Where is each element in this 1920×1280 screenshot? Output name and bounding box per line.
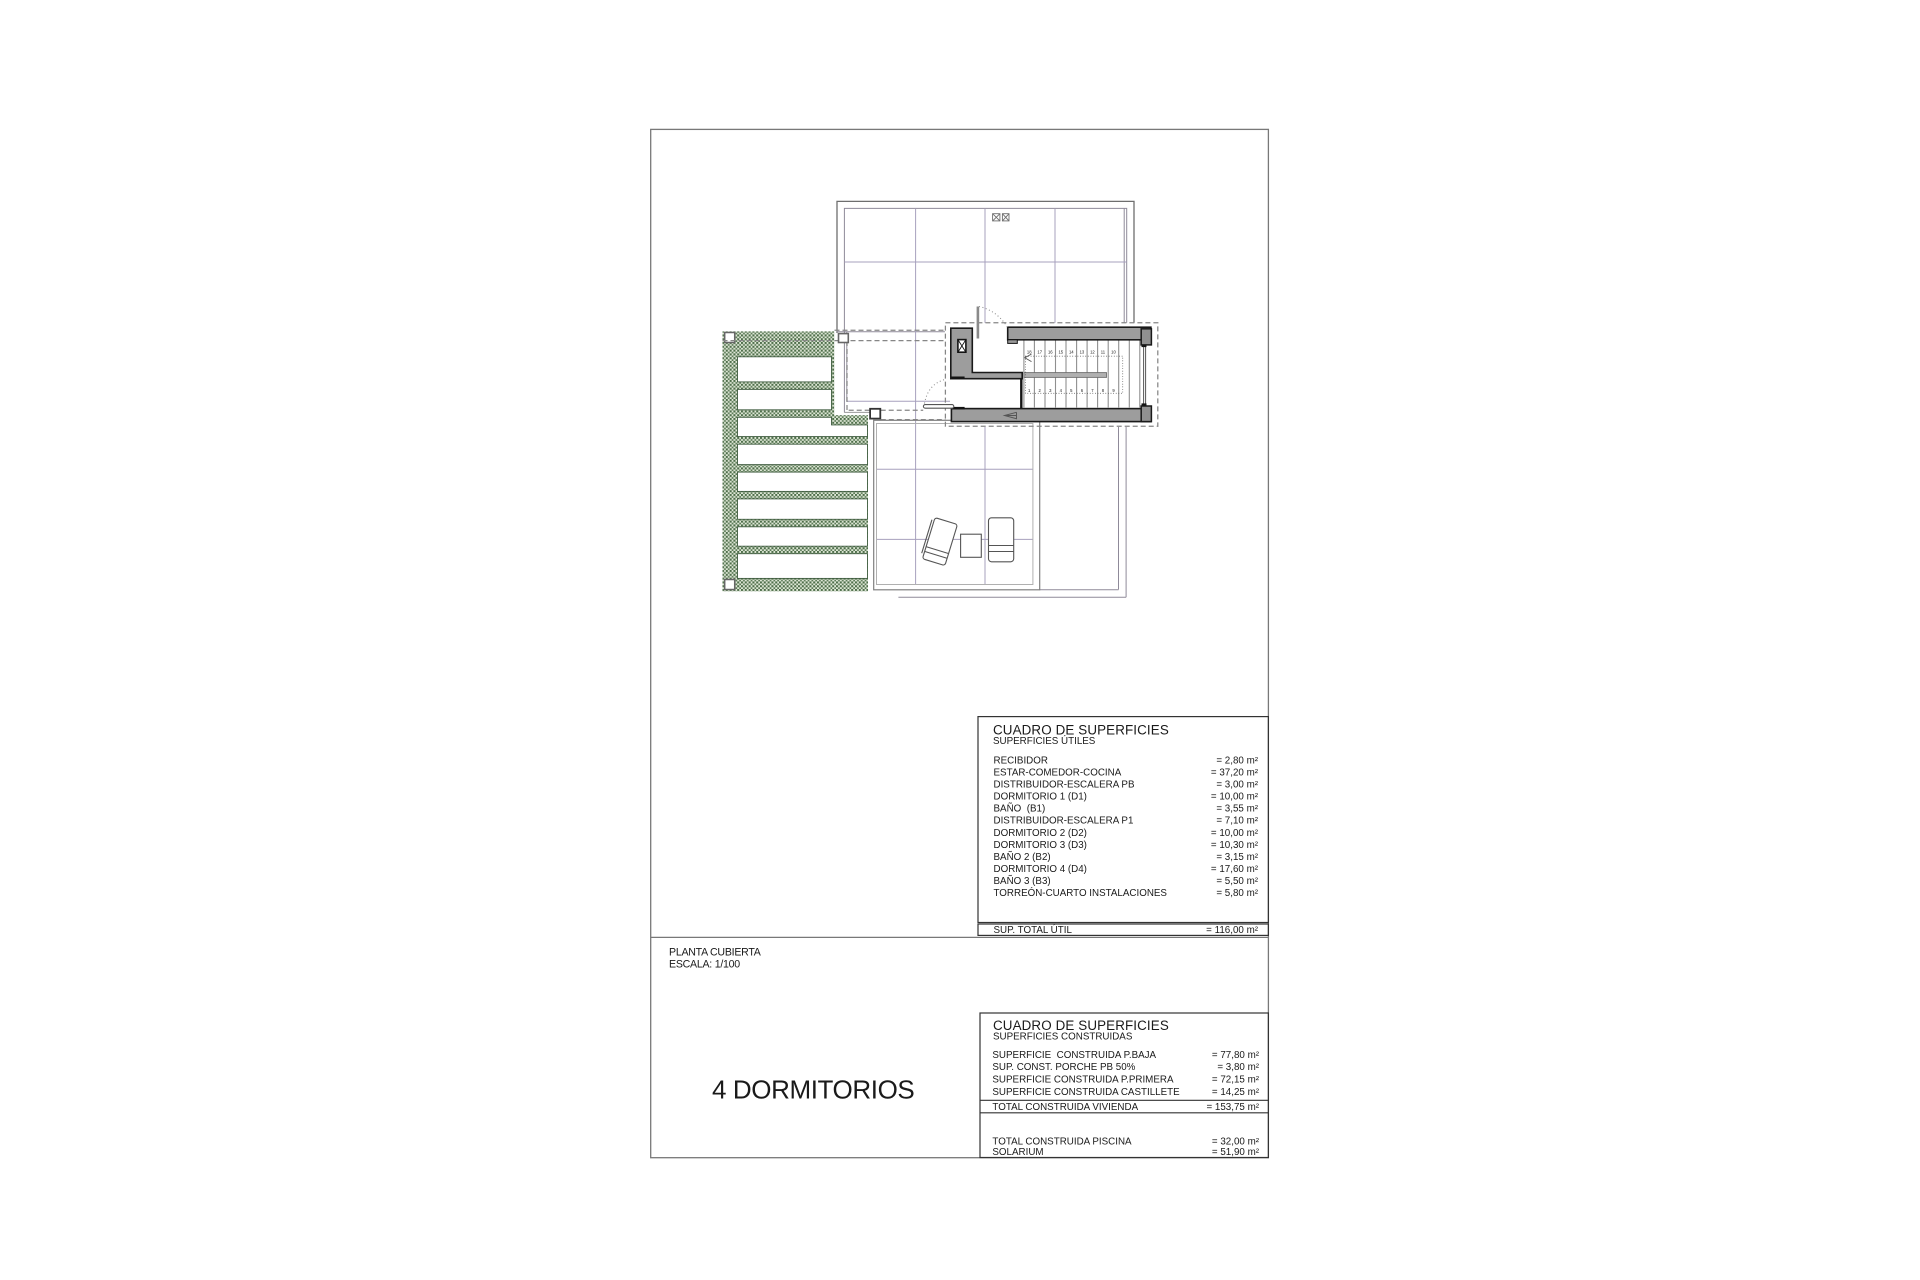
svg-text:= 5,80 m²: = 5,80 m² — [1216, 888, 1258, 899]
svg-text:SUP. CONST. PORCHE PB 50%: SUP. CONST. PORCHE PB 50% — [992, 1062, 1135, 1073]
svg-text:13: 13 — [1080, 350, 1085, 355]
svg-text:= 77,80 m²: = 77,80 m² — [1212, 1050, 1260, 1061]
svg-text:TOTAL CONSTRUIDA PISCINA: TOTAL CONSTRUIDA PISCINA — [992, 1136, 1132, 1147]
svg-text:= 10,30 m²: = 10,30 m² — [1211, 840, 1259, 851]
svg-text:= 51,90 m²: = 51,90 m² — [1212, 1147, 1260, 1158]
svg-text:ESCALA: 1/100: ESCALA: 1/100 — [669, 959, 740, 971]
svg-text:DORMITORIO 3 (D3): DORMITORIO 3 (D3) — [994, 840, 1087, 851]
svg-text:= 72,15 m²: = 72,15 m² — [1212, 1074, 1260, 1085]
svg-text:= 14,25 m²: = 14,25 m² — [1212, 1087, 1260, 1098]
svg-text:= 3,55 m²: = 3,55 m² — [1216, 804, 1258, 815]
svg-text:DISTRIBUIDOR-ESCALERA PB: DISTRIBUIDOR-ESCALERA PB — [994, 780, 1135, 791]
svg-text:SUPERFICIE CONSTRUIDA P.BAJA: SUPERFICIE CONSTRUIDA P.BAJA — [992, 1050, 1156, 1061]
svg-text:= 3,80 m²: = 3,80 m² — [1217, 1062, 1259, 1073]
svg-text:ESTAR-COMEDOR-COCINA: ESTAR-COMEDOR-COCINA — [994, 768, 1122, 779]
svg-text:SUPERFICIES ÚTILES: SUPERFICIES ÚTILES — [993, 736, 1096, 747]
svg-text:= 3,00 m²: = 3,00 m² — [1216, 780, 1258, 791]
svg-text:= 10,00 m²: = 10,00 m² — [1211, 828, 1259, 839]
svg-text:SUPERFICIE CONSTRUIDA CASTILLE: SUPERFICIE CONSTRUIDA CASTILLETE — [992, 1087, 1180, 1098]
svg-text:= 5,50 m²: = 5,50 m² — [1216, 876, 1258, 887]
svg-text:= 32,00 m²: = 32,00 m² — [1212, 1136, 1260, 1147]
svg-text:18: 18 — [1027, 350, 1032, 355]
svg-text:TORREÓN-CUARTO INSTALACIONES: TORREÓN-CUARTO INSTALACIONES — [994, 888, 1168, 899]
svg-text:4 DORMITORIOS: 4 DORMITORIOS — [712, 1074, 914, 1104]
svg-text:DORMITORIO 1 (D1): DORMITORIO 1 (D1) — [994, 792, 1087, 803]
svg-text:12: 12 — [1090, 350, 1095, 355]
svg-text:DORMITORIO 4 (D4): DORMITORIO 4 (D4) — [994, 864, 1087, 875]
svg-text:17: 17 — [1037, 350, 1042, 355]
svg-text:SUPERFICIES CONSTRUIDAS: SUPERFICIES CONSTRUIDAS — [993, 1032, 1133, 1043]
svg-text:= 7,10 m²: = 7,10 m² — [1216, 816, 1258, 827]
svg-text:SUPERFICIE CONSTRUIDA P.PRIMER: SUPERFICIE CONSTRUIDA P.PRIMERA — [992, 1074, 1174, 1085]
svg-text:= 3,15 m²: = 3,15 m² — [1216, 852, 1258, 863]
svg-text:DISTRIBUIDOR-ESCALERA P1: DISTRIBUIDOR-ESCALERA P1 — [994, 816, 1134, 827]
svg-text:BAÑO 3 (B3): BAÑO 3 (B3) — [994, 876, 1051, 887]
svg-text:SUP. TOTAL ÚTIL: SUP. TOTAL ÚTIL — [994, 925, 1073, 936]
svg-text:SOLARIUM: SOLARIUM — [992, 1147, 1043, 1158]
svg-text:BAÑO 2 (B2): BAÑO 2 (B2) — [994, 852, 1051, 863]
svg-text:= 17,60 m²: = 17,60 m² — [1211, 864, 1259, 875]
svg-text:11: 11 — [1101, 350, 1106, 355]
svg-text:DORMITORIO 2 (D2): DORMITORIO 2 (D2) — [994, 828, 1087, 839]
svg-text:RECIBIDOR: RECIBIDOR — [994, 756, 1048, 767]
svg-text:= 116,00 m²: = 116,00 m² — [1206, 925, 1259, 936]
svg-text:10: 10 — [1111, 350, 1116, 355]
svg-text:= 37,20 m²: = 37,20 m² — [1211, 768, 1259, 779]
svg-text:BAÑO (B1): BAÑO (B1) — [994, 804, 1046, 815]
svg-text:16: 16 — [1048, 350, 1053, 355]
svg-text:= 2,80 m²: = 2,80 m² — [1216, 756, 1258, 767]
svg-text:= 10,00 m²: = 10,00 m² — [1211, 792, 1259, 803]
svg-text:= 153,75 m²: = 153,75 m² — [1206, 1102, 1259, 1113]
svg-text:15: 15 — [1058, 350, 1063, 355]
svg-text:PLANTA CUBIERTA: PLANTA CUBIERTA — [669, 946, 762, 958]
svg-text:TOTAL CONSTRUIDA VIVIENDA: TOTAL CONSTRUIDA VIVIENDA — [992, 1102, 1138, 1113]
svg-text:14: 14 — [1069, 350, 1074, 355]
